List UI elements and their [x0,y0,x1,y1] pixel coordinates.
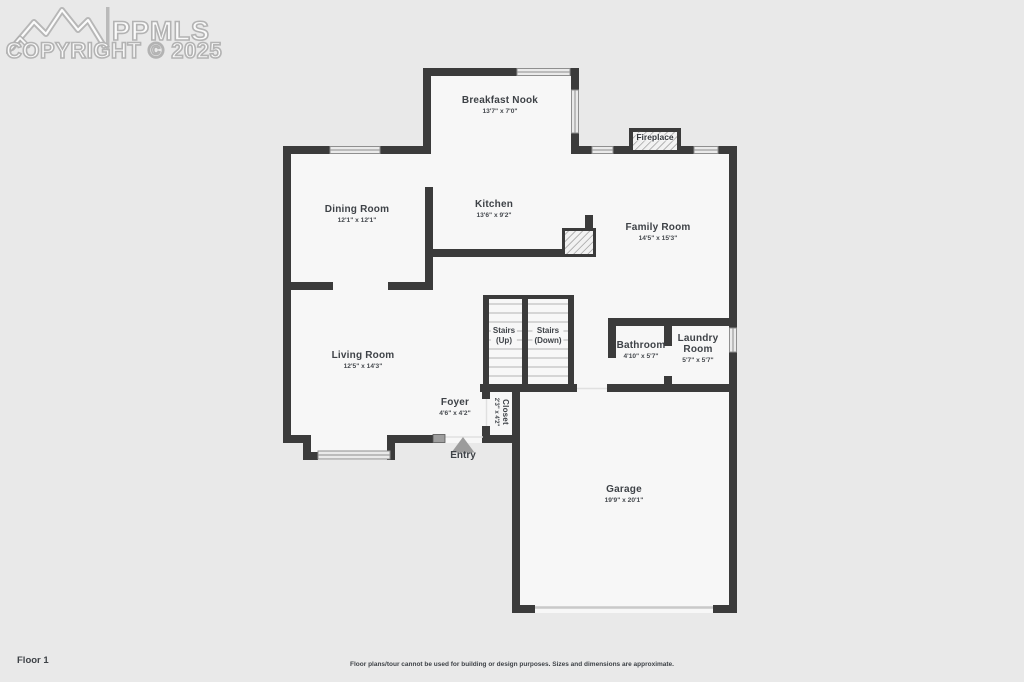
room-dims: 13'6" x 9'2" [475,212,513,219]
disclaimer-text: Floor plans/tour cannot be used for buil… [350,661,674,668]
room-name: Laundry Room [675,333,721,355]
room-dims: 19'9" x 20'1" [605,497,644,504]
stairs-down-sub: (Down) [534,336,561,346]
room-dims: 12'5" x 14'3" [332,363,395,370]
room-dims: 12'1" x 12'1" [325,217,389,224]
room-name: Foyer [439,397,470,408]
stairs-up-sub: (Up) [493,336,515,346]
stairs-down-name: Stairs [534,326,561,336]
room-dims: 4'10" x 5'7" [617,353,666,360]
room-label-closet: Closet 2'3" x 4'2" [493,398,509,427]
room-name: Garage [605,484,644,495]
room-dims: 2'3" x 4'2" [493,398,499,427]
room-label-breakfast-nook: Breakfast Nook 13'7" x 7'0" [462,95,538,115]
room-name: Dining Room [325,204,389,215]
room-label-family-room: Family Room 14'5" x 15'3" [626,222,691,242]
room-label-garage: Garage 19'9" x 20'1" [605,484,644,504]
room-name: Closet [500,398,509,427]
room-dims: 13'7" x 7'0" [462,108,538,115]
room-name: Breakfast Nook [462,95,538,106]
room-label-stairs-down: Stairs (Down) [532,325,563,348]
room-label-bathroom: Bathroom 4'10" x 5'7" [617,340,666,360]
fireplace-label: Fireplace [636,132,673,142]
room-label-kitchen: Kitchen 13'6" x 9'2" [475,199,513,219]
room-name: Family Room [626,222,691,233]
room-label-dining-room: Dining Room 12'1" x 12'1" [325,204,389,224]
room-label-stairs-up: Stairs (Up) [491,325,517,348]
room-label-foyer: Foyer 4'6" x 4'2" [439,397,470,417]
entry-label: Entry [450,450,476,461]
room-dims: 5'7" x 5'7" [675,357,721,364]
room-dims: 14'5" x 15'3" [626,235,691,242]
pantry-box [564,230,595,256]
floor-plan-page: Breakfast Nook 13'7" x 7'0" Kitchen 13'6… [0,0,1024,682]
room-dims: 4'6" x 4'2" [439,410,470,417]
room-name: Living Room [332,350,395,361]
front-door [433,435,445,443]
room-name: Bathroom [617,340,666,351]
stairs-up-name: Stairs [493,326,515,336]
room-label-laundry-room: Laundry Room 5'7" x 5'7" [675,333,721,364]
floor-label: Floor 1 [17,655,49,666]
room-name: Kitchen [475,199,513,210]
room-label-living-room: Living Room 12'5" x 14'3" [332,350,395,370]
